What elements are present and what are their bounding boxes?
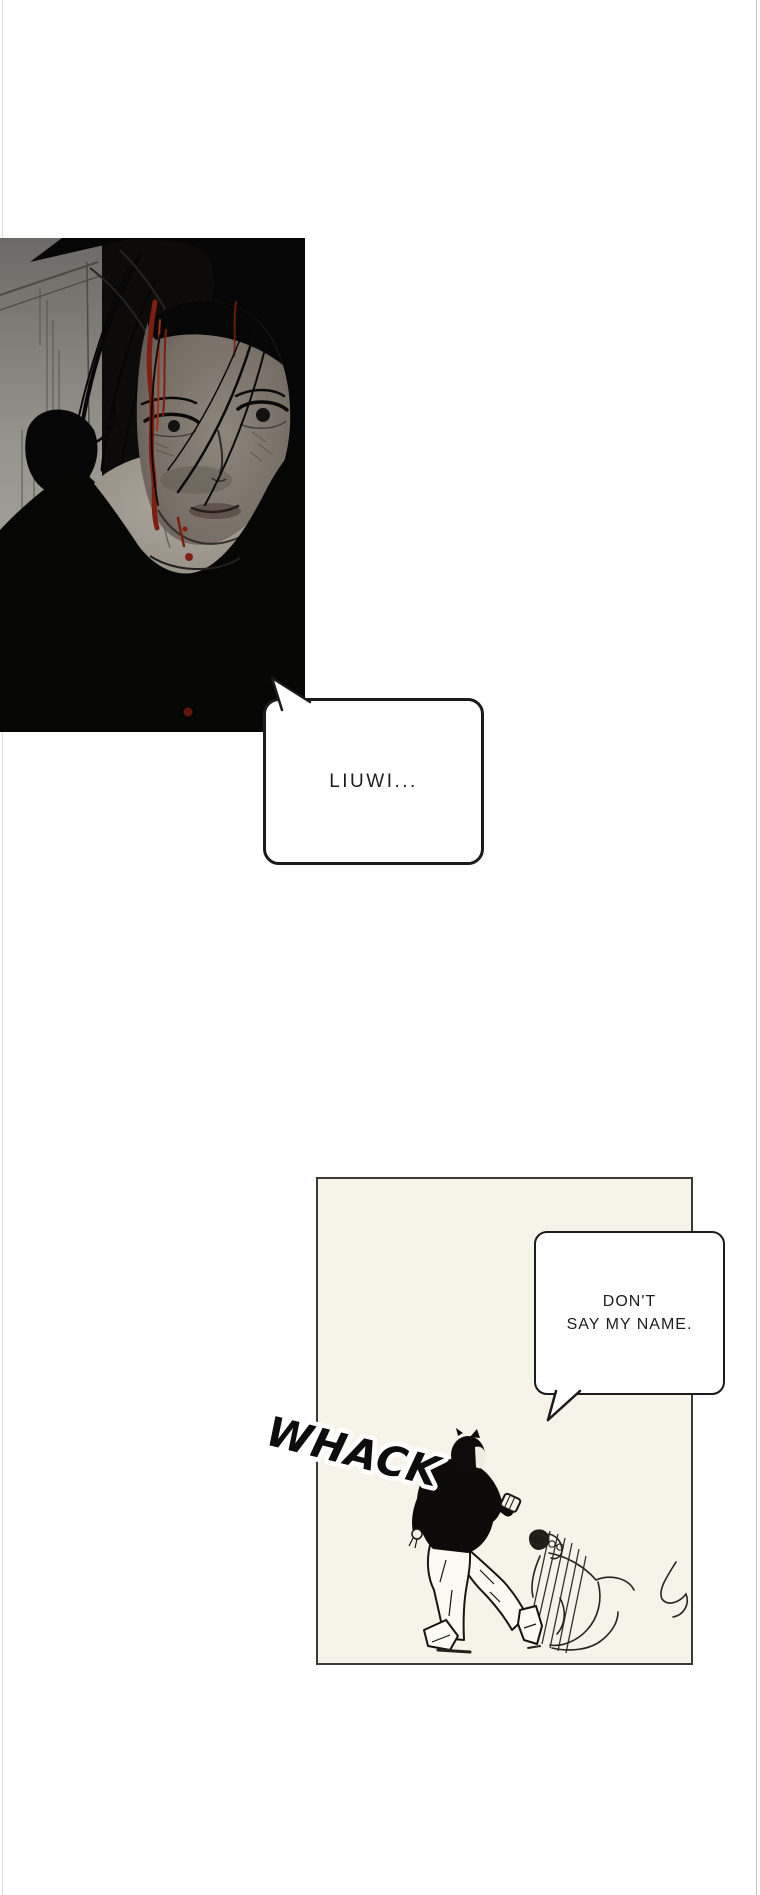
dark-panel-art xyxy=(0,238,305,732)
bubble-liuwi-text: LIUWI... xyxy=(329,771,418,793)
panel-portrait-dark xyxy=(0,238,305,732)
page-edge-line-right xyxy=(756,0,757,1895)
comic-page: LIUWI... xyxy=(0,0,760,1895)
speech-bubble-liuwi-tail xyxy=(258,672,314,716)
speech-bubble-liuwi: LIUWI... xyxy=(263,698,484,865)
bubble-dont-text: DON'T SAY MY NAME. xyxy=(567,1290,693,1336)
speech-bubble-dont-tail xyxy=(540,1386,588,1428)
sfx-whack: WHACK xyxy=(248,1394,458,1494)
speech-bubble-dont-say: DON'T SAY MY NAME. xyxy=(534,1231,725,1395)
sfx-whack-text: WHACK xyxy=(262,1407,447,1497)
bubble-dont-line2: SAY MY NAME. xyxy=(567,1313,693,1336)
bubble-dont-line1: DON'T xyxy=(567,1290,693,1313)
